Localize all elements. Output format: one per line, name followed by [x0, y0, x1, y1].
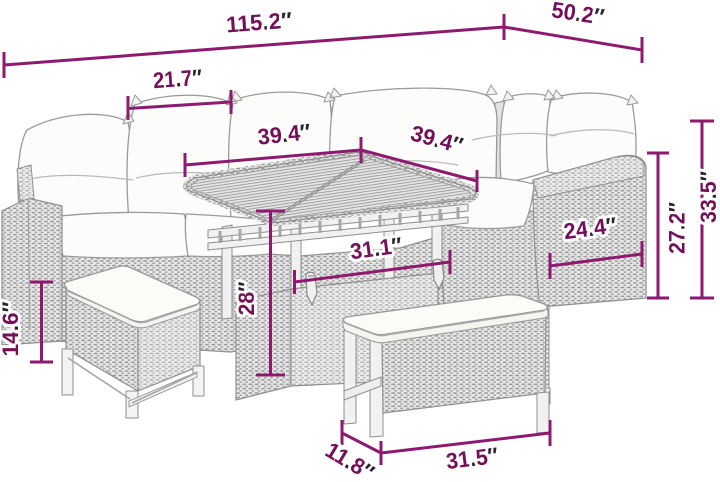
svg-text:115.2″: 115.2″	[225, 8, 293, 38]
svg-text:27.2″: 27.2″	[665, 202, 690, 254]
svg-text:33.5″: 33.5″	[696, 171, 720, 223]
svg-text:21.7″: 21.7″	[152, 65, 203, 93]
svg-text:28″: 28″	[234, 281, 259, 315]
svg-text:14.6″: 14.6″	[0, 301, 23, 356]
